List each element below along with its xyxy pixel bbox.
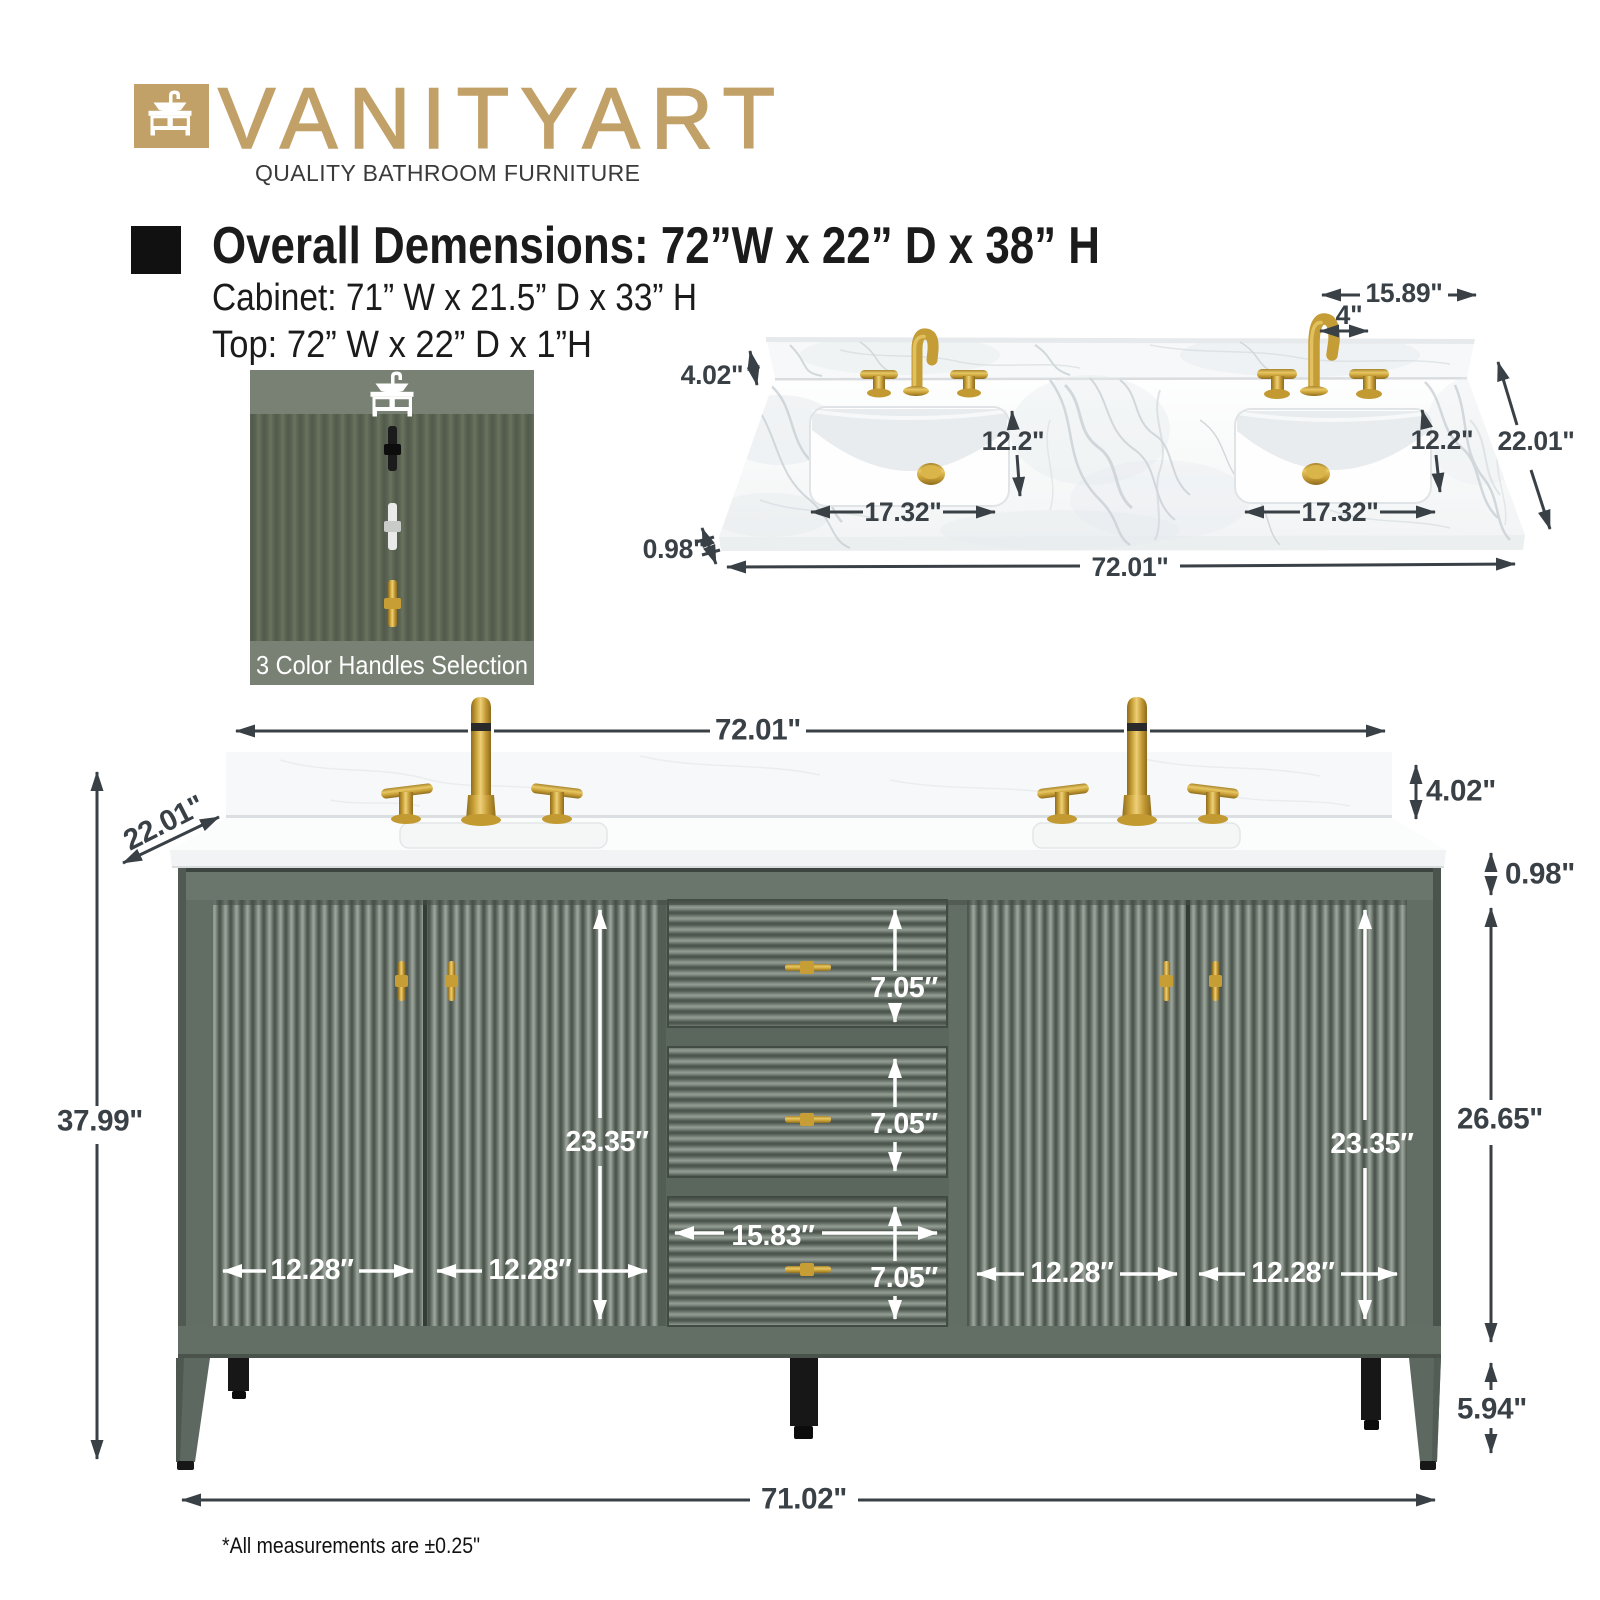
svg-text:5.94": 5.94" <box>1457 1393 1527 1426</box>
svg-text:4.02": 4.02" <box>681 360 744 390</box>
svg-text:72.01": 72.01" <box>1091 552 1168 582</box>
svg-text:Overall Demensions: 72”W x 22”: Overall Demensions: 72”W x 22” D x 38” H <box>212 217 1100 275</box>
svg-text:71.02": 71.02" <box>761 1483 847 1516</box>
svg-text:22.01": 22.01" <box>1497 426 1574 456</box>
svg-text:0.98": 0.98" <box>643 534 706 564</box>
svg-text:37.99": 37.99" <box>57 1105 143 1138</box>
svg-text:0.98": 0.98" <box>1505 858 1575 891</box>
svg-text:7.05″: 7.05″ <box>870 1108 938 1140</box>
svg-text:72.01": 72.01" <box>715 714 801 747</box>
svg-text:17.32": 17.32" <box>1301 497 1378 527</box>
svg-text:*All measurements are ±0.25": *All measurements are ±0.25" <box>222 1533 480 1558</box>
svg-text:26.65": 26.65" <box>1457 1103 1543 1136</box>
svg-text:23.35″: 23.35″ <box>1330 1128 1414 1160</box>
svg-text:VANITYART: VANITYART <box>218 71 775 167</box>
svg-text:12.28″: 12.28″ <box>270 1254 354 1286</box>
svg-text:12.28″: 12.28″ <box>1030 1257 1114 1289</box>
svg-text:4": 4" <box>1336 300 1363 330</box>
svg-text:12.28″: 12.28″ <box>1251 1257 1335 1289</box>
svg-text:23.35″: 23.35″ <box>565 1126 649 1158</box>
svg-text:15.89": 15.89" <box>1365 278 1442 308</box>
svg-text:12.28″: 12.28″ <box>488 1254 572 1286</box>
svg-text:7.05″: 7.05″ <box>870 972 938 1004</box>
svg-text:3 Color Handles Selection: 3 Color Handles Selection <box>256 650 528 680</box>
svg-text:7.05″: 7.05″ <box>870 1262 938 1294</box>
svg-text:12.2": 12.2" <box>1411 425 1474 455</box>
svg-text:17.32": 17.32" <box>864 497 941 527</box>
svg-text:QUALITY BATHROOM FURNITURE: QUALITY BATHROOM FURNITURE <box>255 160 640 186</box>
svg-text:4.02": 4.02" <box>1426 775 1496 808</box>
svg-text:15.83″: 15.83″ <box>731 1220 815 1252</box>
svg-text:Cabinet: 71” W x 21.5” D x 33”: Cabinet: 71” W x 21.5” D x 33” H <box>212 277 697 319</box>
svg-text:12.2": 12.2" <box>982 426 1045 456</box>
svg-text:Top: 72” W x 22” D x 1”H: Top: 72” W x 22” D x 1”H <box>212 324 592 366</box>
